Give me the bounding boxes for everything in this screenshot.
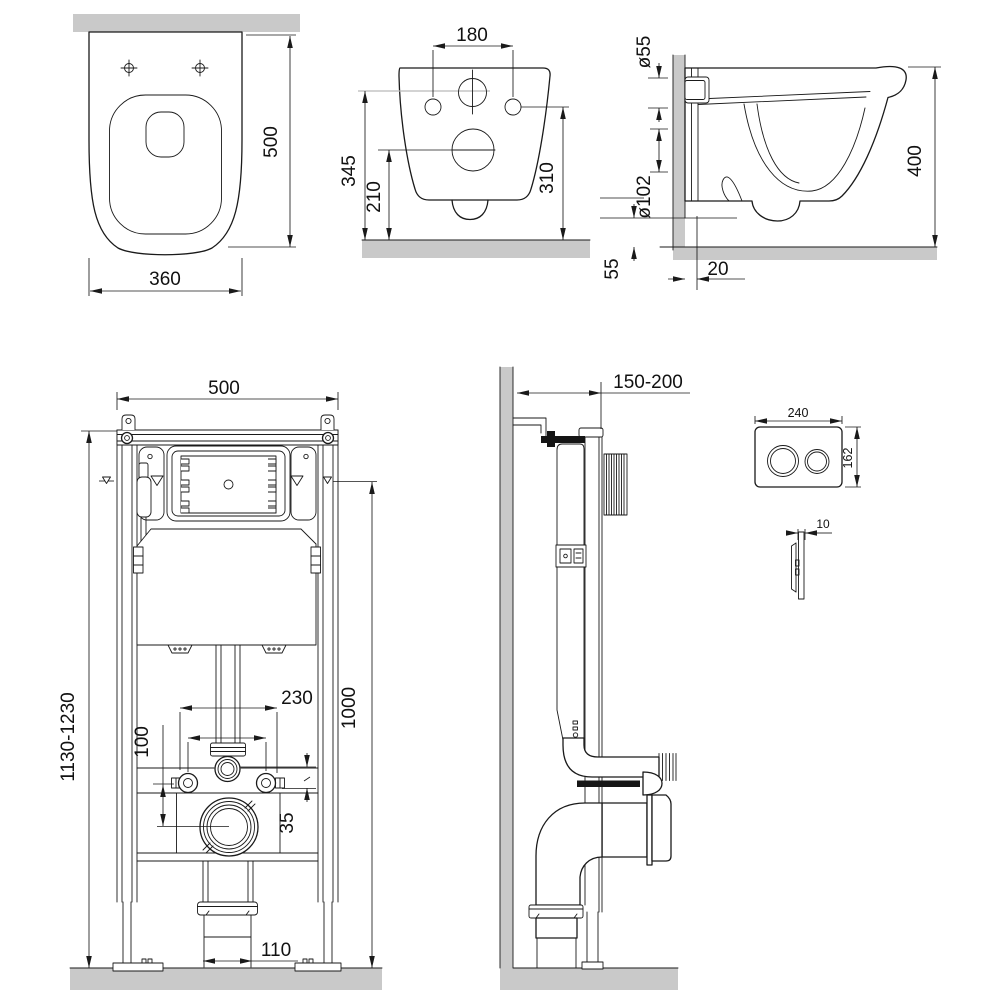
frame-front-view: 500 1130-1230 1000 230 100 35 110 [58, 378, 382, 990]
drain-port [200, 798, 258, 856]
dim-label-bolt-height: 310 [537, 162, 558, 194]
bowl-inner-curve [744, 104, 865, 191]
dim-label-flush-axis: 1000 [339, 687, 360, 729]
toilet-seat-outline [110, 95, 222, 234]
flush-connector-elbow [563, 738, 659, 777]
rail-leg [587, 912, 598, 962]
technical-drawing-page: 500 360 180 345 210 310 [0, 0, 1000, 1000]
outlet-floor-offset-dimension: 55 [602, 247, 634, 280]
dim-label-spacing: 230 [281, 688, 313, 709]
inlet-diameter-dimension: ø55 [634, 36, 668, 122]
rail-foot [582, 962, 603, 969]
left-foot-plate [113, 963, 163, 971]
drawing-canvas: 500 360 180 345 210 310 [0, 0, 1000, 1000]
dim-label-outlet-dia: ø102 [634, 175, 655, 218]
dim-label-plate-height: 162 [841, 448, 855, 469]
inspection-box [556, 545, 586, 567]
trapway-hump [452, 200, 488, 220]
floor-section [500, 968, 678, 990]
wall-bracket-assembly [513, 418, 585, 447]
flush-pipe-bell [211, 743, 246, 756]
wall-section [673, 55, 685, 250]
drain-socket [602, 803, 647, 857]
dim-label-width: 360 [149, 269, 181, 290]
left-corner-screw [122, 433, 133, 444]
flush-connector-threads [659, 754, 676, 781]
left-rail [117, 430, 137, 963]
toilet-fixing-rod [577, 781, 640, 788]
seat-lines [698, 92, 870, 105]
dim-label-pipe: 110 [261, 940, 291, 961]
dim-extension-lines [433, 50, 513, 97]
dim-label-wall-gap: 20 [707, 259, 728, 280]
left-bolt-hole [425, 99, 441, 115]
toilet-top-view: 500 360 [73, 14, 300, 296]
dim-label-height: 400 [905, 145, 926, 177]
toilet-side-outline [685, 67, 906, 222]
rail-top-cap [579, 428, 603, 437]
thickness-dimension: 10 [786, 517, 832, 540]
dim-label-inlet-dia: ø55 [634, 36, 655, 69]
bowl-opening [146, 112, 184, 157]
frame-side-view: 150-200 [500, 367, 690, 990]
flush-elbow-port [215, 757, 240, 782]
drain-socket-collar [647, 795, 652, 865]
toilet-back-view: 180 345 210 310 [339, 25, 590, 258]
flush-plate-duct [604, 454, 627, 515]
mounting-hole-markers [121, 60, 208, 76]
dim-label-plate-width: 240 [788, 406, 809, 420]
left-hanger-tab [122, 415, 135, 430]
wall-floor-lines [500, 367, 678, 968]
flush-plate-side-profile [792, 532, 805, 599]
toilet-back-outline [399, 68, 550, 200]
access-panel-lid [181, 456, 276, 513]
drain-socket-bell [652, 795, 671, 861]
toilet-side-view: ø55 ø102 55 20 400 [600, 36, 941, 290]
flush-pipe [216, 645, 240, 743]
right-corner-screw [323, 433, 334, 444]
drain-socket-flange [198, 902, 258, 915]
dim-label-depth-range: 150-200 [613, 372, 683, 393]
drain-elbow [536, 803, 602, 905]
cistern-body [137, 529, 316, 645]
dim-label-inlet-height: 345 [339, 155, 360, 187]
right-bolt-hole [505, 99, 521, 115]
floor-pipe-upper [536, 918, 577, 938]
bowl-inner-curve-2 [757, 104, 799, 183]
dim-label-offset: 100 [132, 726, 153, 758]
dim-label-outlet-offset: 55 [602, 258, 623, 279]
dim-label-frame-width: 500 [208, 378, 240, 399]
floor-section [362, 240, 590, 258]
floor-pipe-lower [537, 938, 576, 968]
dim-label-bolt-spacing: 180 [456, 25, 488, 46]
inlet-stub-inner [685, 81, 705, 100]
top-crossbar [117, 430, 338, 445]
drain-outlet-pipe [204, 915, 251, 967]
wall-section [73, 14, 300, 32]
right-rail [318, 430, 338, 963]
wall-section [500, 367, 513, 968]
depth-range-dimension: 150-200 [517, 372, 690, 429]
pipe-110-dimension: 110 [203, 940, 298, 961]
bracket-nut [547, 431, 555, 447]
right-side-bracket [291, 447, 316, 520]
toilet-bowl-outline [89, 32, 242, 255]
dim-label-thickness: 10 [816, 517, 830, 531]
trapway-curve [722, 177, 742, 201]
cistern-side [557, 444, 584, 740]
dim-label-height-range: 1130-1230 [58, 692, 79, 781]
dim-label-axis-gap: 35 [277, 812, 298, 833]
outlet-diameter-dimension: ø102 [600, 129, 737, 219]
flush-plate-view: 240 162 10 [755, 406, 861, 599]
dim-label-depth: 500 [261, 126, 282, 158]
dim-label-outlet-height: 210 [364, 181, 385, 213]
right-foot-plate [295, 963, 341, 971]
right-hanger-tab [321, 415, 334, 430]
drain-down-pipe [203, 861, 253, 902]
